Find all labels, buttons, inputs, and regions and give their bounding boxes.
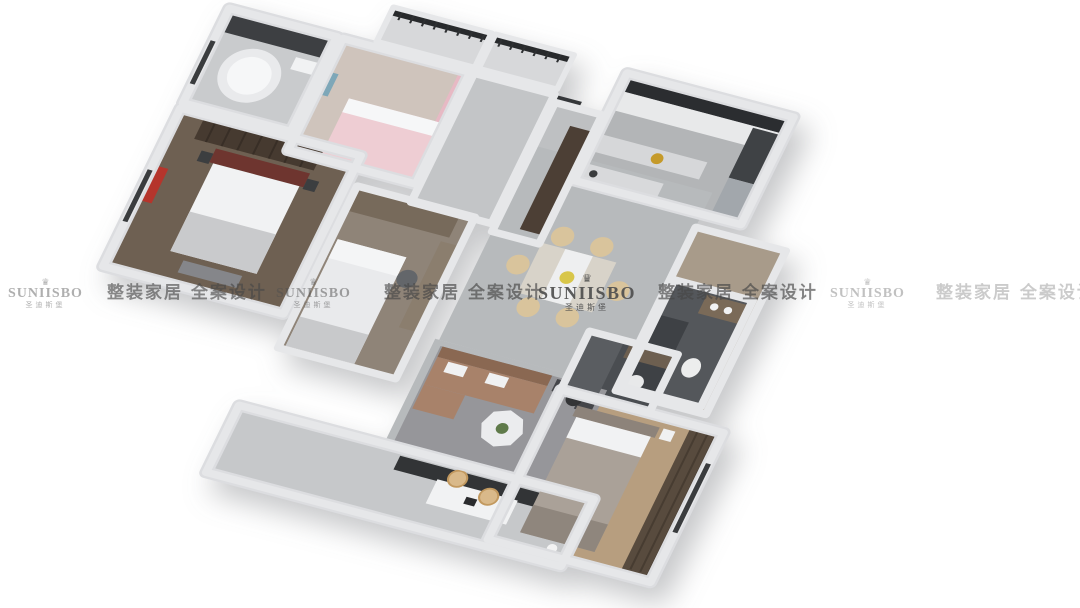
floorplan-render-image: ♛ SUNIISBO 圣迪斯堡 整装家居 全案设计 ♛ SUNIISBO 圣迪斯… xyxy=(0,0,1080,608)
floorplan-3d-svg xyxy=(0,0,1080,608)
apartment-plan xyxy=(26,0,870,589)
